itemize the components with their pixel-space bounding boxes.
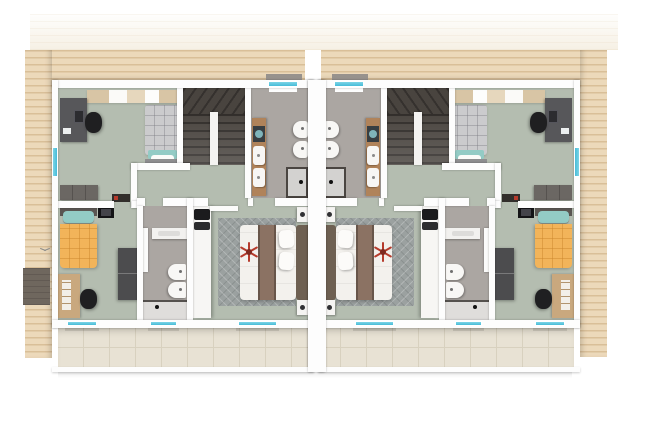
terrace — [324, 328, 574, 367]
shower — [143, 300, 187, 320]
bidet — [324, 141, 339, 158]
washbasin — [367, 146, 379, 165]
office-chair — [85, 112, 102, 133]
wall-shelf — [452, 90, 545, 103]
roof-left-strip — [25, 50, 52, 358]
exterior-wall-side — [52, 80, 58, 328]
office-single-bed — [145, 105, 180, 163]
wall-tv — [98, 207, 114, 218]
washbasin — [367, 168, 379, 187]
bathroom-door — [143, 228, 148, 272]
wall — [495, 201, 500, 208]
stair-flight-left — [422, 114, 449, 165]
window — [52, 147, 58, 177]
bed-runner — [258, 225, 276, 300]
terrace-parapet — [318, 367, 580, 372]
window — [355, 321, 394, 326]
office-single-bed — [452, 105, 487, 163]
office-chair — [530, 112, 547, 133]
window-sill — [236, 328, 279, 331]
stair-flight-right — [387, 114, 414, 165]
exterior-wall-side — [574, 80, 580, 328]
pillow — [337, 251, 353, 270]
stair-spine-wall — [210, 112, 218, 165]
stair-flight-right — [218, 114, 245, 165]
window — [150, 321, 177, 326]
window — [455, 321, 482, 326]
ceiling-fan-icon — [373, 242, 393, 262]
wall — [381, 88, 387, 198]
office-desk — [60, 98, 87, 142]
media-console — [112, 194, 130, 202]
stair-spine-wall — [414, 112, 422, 165]
wall-tv — [518, 207, 534, 218]
dresser — [60, 185, 98, 200]
washbasin — [253, 146, 265, 165]
window-sill — [148, 328, 179, 331]
nightstand — [297, 300, 308, 315]
roof-center-seam — [305, 50, 321, 81]
shower — [445, 300, 489, 320]
mattress — [452, 105, 487, 155]
roof-right-strip — [580, 50, 607, 357]
master-door — [394, 206, 422, 211]
unit-right — [318, 80, 580, 372]
window — [535, 321, 565, 326]
wall — [131, 163, 190, 170]
window-sill — [453, 328, 484, 331]
window-sill — [335, 88, 363, 92]
washing-machine — [253, 126, 265, 142]
stair-winder — [183, 88, 245, 114]
wall — [424, 198, 469, 206]
window — [67, 321, 97, 326]
toilet — [324, 121, 339, 138]
wall — [137, 198, 145, 206]
toilet — [168, 264, 186, 280]
building-shadow — [58, 372, 572, 378]
stairwell — [387, 88, 449, 165]
window — [268, 81, 298, 87]
kid-bed — [535, 224, 572, 268]
party-wall — [308, 80, 326, 372]
kid-desk — [552, 274, 574, 318]
skylight-patch — [23, 268, 50, 305]
wall-shelf — [87, 90, 180, 103]
master-door — [210, 206, 238, 211]
wall — [245, 88, 251, 198]
kid-bed-pillow — [538, 211, 569, 223]
window-sill — [533, 328, 567, 331]
kid-chair — [80, 289, 97, 309]
pillow — [337, 229, 353, 248]
sink-counter — [152, 228, 187, 239]
washbasin — [253, 168, 265, 187]
tv-equipment — [194, 222, 210, 230]
wall — [187, 198, 193, 320]
window-sill — [269, 88, 297, 92]
pillow — [278, 251, 294, 270]
wall — [379, 198, 384, 206]
pillow — [278, 229, 294, 248]
mattress — [145, 105, 180, 155]
bed-runner — [356, 225, 374, 300]
toilet — [293, 121, 308, 138]
floorplan-render — [0, 0, 650, 422]
terrace-parapet — [52, 367, 314, 372]
ceiling-fan-icon — [239, 242, 259, 262]
bidet — [446, 282, 464, 298]
kid-bed — [60, 224, 97, 268]
desk-papers — [561, 128, 569, 134]
window — [574, 147, 580, 177]
shower — [286, 167, 308, 198]
bidet — [168, 282, 186, 298]
window — [334, 81, 364, 87]
unit-left — [52, 80, 314, 372]
headboard — [296, 225, 308, 300]
window — [238, 321, 277, 326]
window-sill — [353, 328, 396, 331]
bidet — [293, 141, 308, 158]
wall — [487, 198, 495, 206]
tv-unit — [422, 209, 438, 220]
rear-roof-slope — [30, 14, 618, 50]
stair-flight-left — [183, 114, 210, 165]
stair-winder — [387, 88, 449, 114]
wardrobe — [118, 248, 139, 300]
wall — [489, 206, 495, 320]
shower — [324, 167, 346, 198]
terrace — [58, 328, 308, 367]
laptop — [548, 110, 558, 123]
tv-unit — [194, 209, 210, 220]
tv-equipment — [422, 222, 438, 230]
sink-counter — [445, 228, 480, 239]
wall — [58, 201, 114, 208]
wall — [518, 201, 574, 208]
wall — [137, 206, 143, 320]
kid-desk — [58, 274, 80, 318]
wall — [163, 198, 208, 206]
wall — [248, 198, 253, 206]
wall — [439, 198, 445, 320]
washing-machine — [367, 126, 379, 142]
wardrobe — [493, 248, 514, 300]
laptop — [74, 110, 84, 123]
bird-mark — [40, 247, 50, 253]
office-desk — [545, 98, 572, 142]
wall — [449, 88, 455, 164]
nightstand — [297, 207, 308, 222]
dresser — [534, 185, 572, 200]
stairwell — [183, 88, 245, 165]
toilet — [446, 264, 464, 280]
wall — [177, 88, 183, 164]
window-sill — [65, 328, 99, 331]
wall — [442, 163, 501, 170]
kid-chair — [535, 289, 552, 309]
kid-bed-pillow — [63, 211, 94, 223]
desk-papers — [63, 128, 71, 134]
